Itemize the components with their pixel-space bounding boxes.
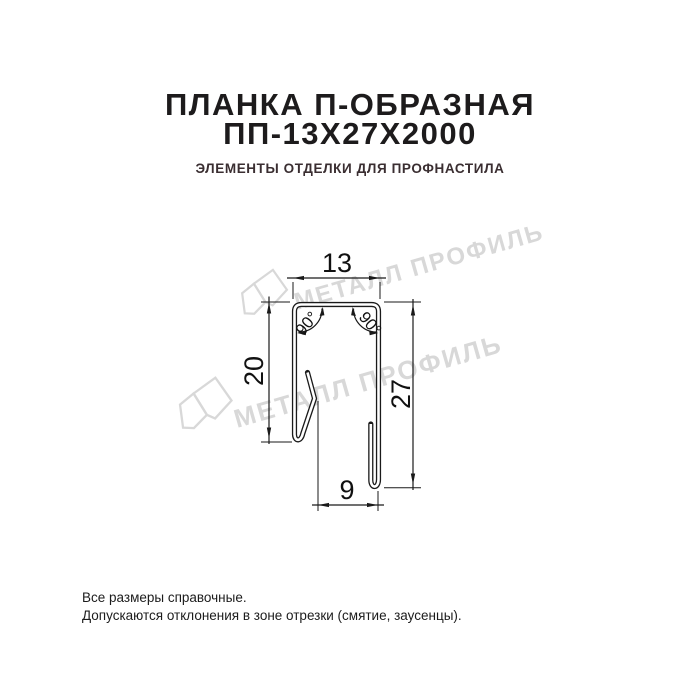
metall-profil-logo-icon — [172, 375, 236, 431]
footer-note-1: Все размеры справочные. — [82, 589, 462, 607]
dim-arrow-icon — [267, 428, 271, 439]
dim-left-label: 20 — [239, 356, 269, 386]
metall-profil-logo-icon — [235, 268, 290, 317]
dim-arrow-icon — [318, 503, 329, 507]
dim-arrow-icon — [411, 305, 415, 316]
dim-bottom-label: 9 — [339, 475, 354, 505]
dim-arrow-icon — [367, 503, 378, 507]
dim-right-label: 27 — [386, 379, 416, 409]
dim-top-label: 13 — [322, 248, 352, 278]
footer-notes: Все размеры справочные. Допускаются откл… — [82, 589, 462, 625]
footer-note-2: Допускаются отклонения в зоне отрезки (с… — [82, 607, 462, 625]
arc-arrow-icon — [351, 307, 356, 316]
dim-arrow-icon — [293, 276, 304, 280]
watermark-middle: МЕТАЛЛ ПРОФИЛЬ — [172, 328, 505, 433]
dim-arrow-icon — [411, 474, 415, 485]
dimension-right-27: 27 — [384, 299, 421, 490]
watermark-text: МЕТАЛЛ ПРОФИЛЬ — [230, 328, 505, 433]
page: ПЛАНКА П-ОБРАЗНАЯ ПП-13Х27Х2000 ЭЛЕМЕНТЫ… — [0, 0, 700, 700]
